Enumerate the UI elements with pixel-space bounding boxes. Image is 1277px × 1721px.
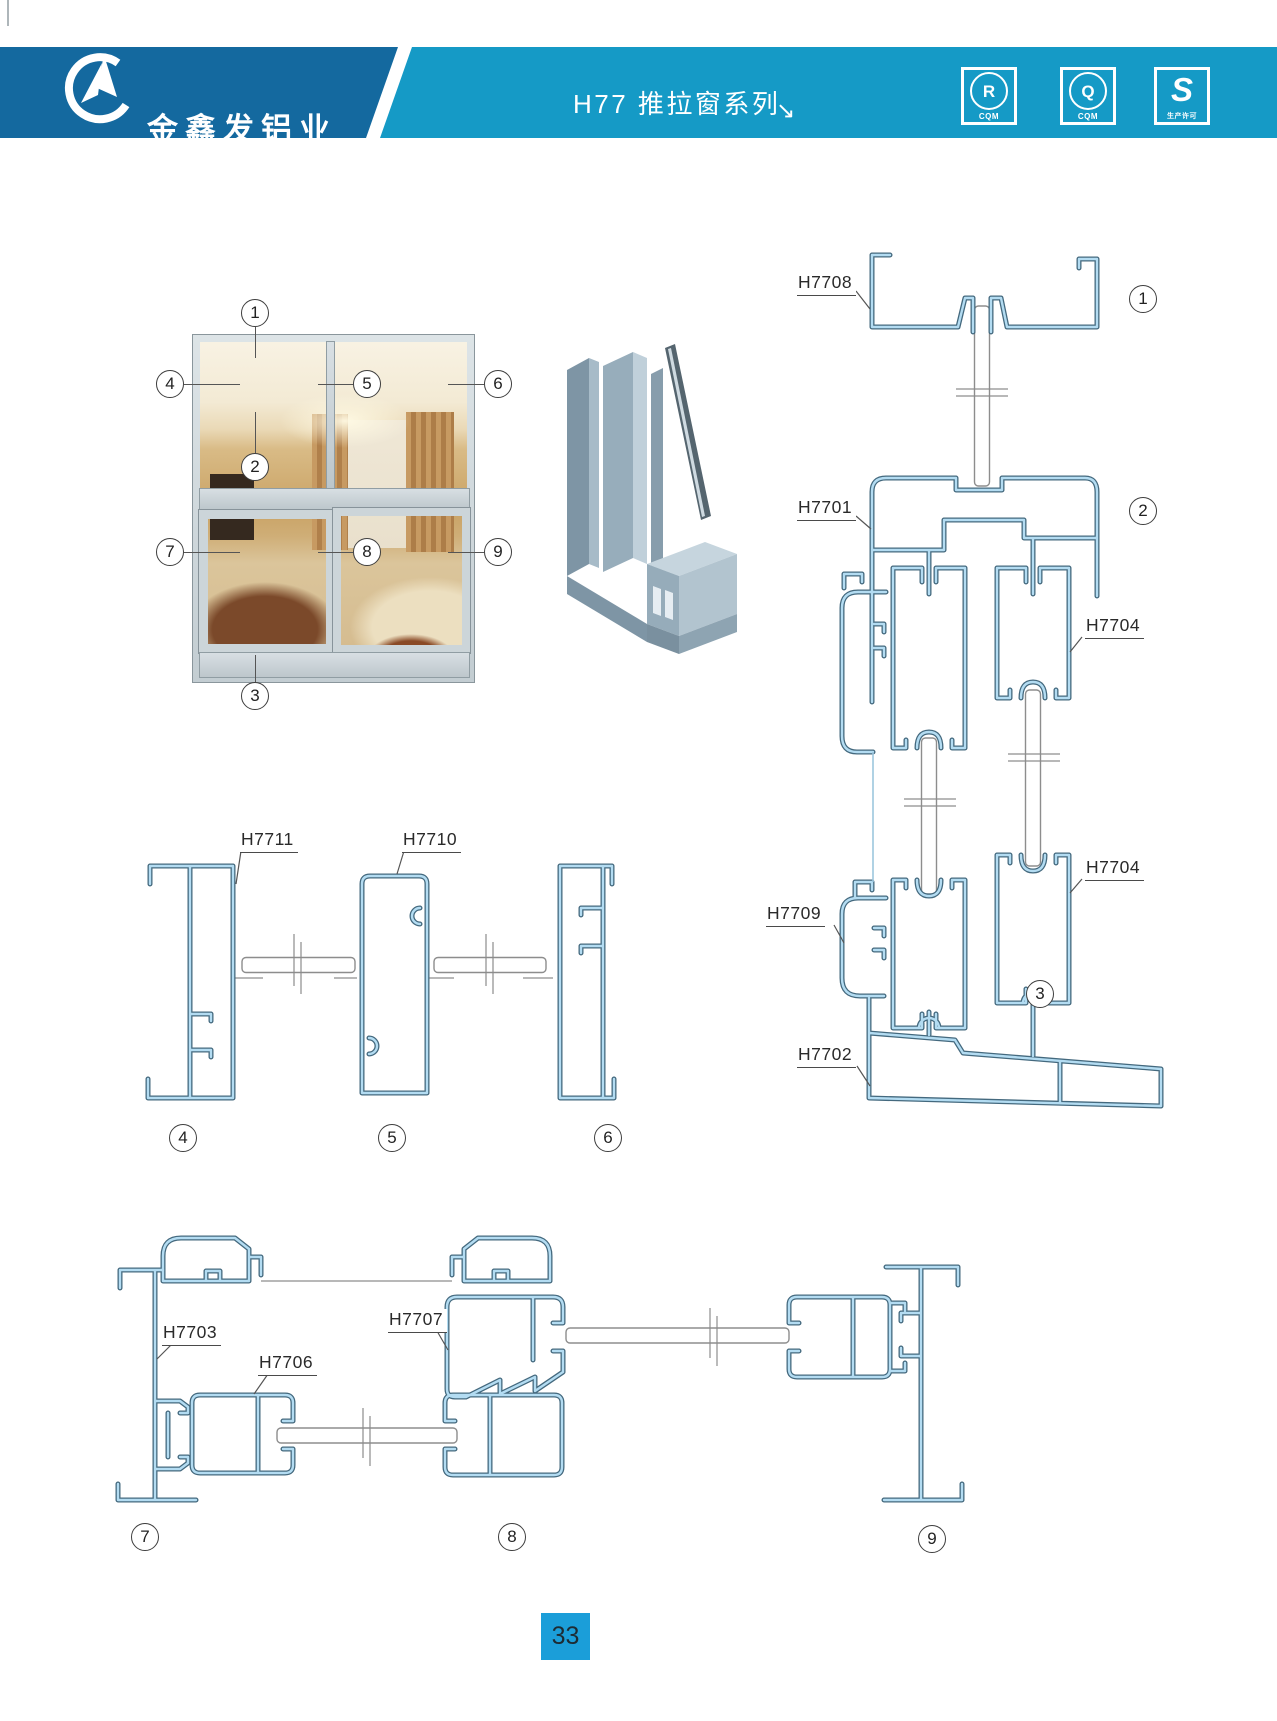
callout-section-3: 3 [1026, 980, 1054, 1008]
vertical-section-diagram [700, 225, 1180, 1055]
leader-line [448, 384, 484, 385]
part-label-h7704-upper: H7704 [1085, 615, 1144, 639]
part-label-h7708: H7708 [797, 272, 856, 296]
window-photo [192, 334, 475, 683]
callout-section-4: 4 [169, 1124, 197, 1152]
corner-mark [7, 0, 9, 26]
leader-line [255, 412, 256, 453]
cert-badge-rcqm: R CQM [961, 67, 1017, 125]
callout-section-8: 8 [498, 1523, 526, 1551]
leader-line [318, 384, 353, 385]
leader-line [255, 655, 256, 682]
window-bottom-track [199, 652, 470, 678]
part-label-h7706: H7706 [258, 1352, 317, 1376]
callout-photo-1: 1 [241, 299, 269, 327]
callout-section-6: 6 [594, 1124, 622, 1152]
part-label-h7701: H7701 [797, 497, 856, 521]
cert-letter: R [970, 72, 1008, 110]
cert-sub: CQM [1063, 112, 1113, 121]
leader-line [448, 552, 484, 553]
callout-photo-5: 5 [353, 370, 381, 398]
callout-photo-3: 3 [241, 682, 269, 710]
callout-photo-6: 6 [484, 370, 512, 398]
arrow-icon: ↘ [776, 97, 795, 124]
cert-sub: CQM [964, 112, 1014, 121]
horizontal-section-bottom-diagram [95, 1225, 975, 1515]
callout-photo-8: 8 [353, 538, 381, 566]
callout-photo-2: 2 [241, 453, 269, 481]
window-sash-left [199, 510, 335, 653]
page-number: 33 [541, 1613, 590, 1660]
cert-sub: 生产许可 [1157, 111, 1207, 121]
window-sash-right [333, 508, 470, 653]
cert-badge-qcqm: Q CQM [1060, 67, 1116, 125]
catalog-page: 金鑫发铝业 JINXINFA ALUMINUM H77 推拉窗系列 ↘ R CQ… [0, 0, 1277, 1721]
callout-section-5: 5 [378, 1124, 406, 1152]
part-label-h7707: H7707 [388, 1309, 447, 1333]
leader-line [184, 552, 240, 553]
callout-photo-4: 4 [156, 370, 184, 398]
part-label-h7703: H7703 [162, 1322, 221, 1346]
callout-section-2: 2 [1129, 497, 1157, 525]
callout-section-7: 7 [131, 1523, 159, 1551]
part-label-h7702: H7702 [797, 1044, 856, 1068]
leader-line [255, 327, 256, 358]
company-name-en: JINXINFA ALUMINUM [149, 145, 322, 161]
window-transom [199, 488, 470, 510]
cert-badge-license: S 生产许可 [1154, 67, 1210, 125]
window-mullion [326, 341, 335, 489]
callout-section-1: 1 [1129, 285, 1157, 313]
cert-letter: S [1157, 70, 1207, 110]
callout-photo-9: 9 [484, 538, 512, 566]
company-logo-icon [52, 53, 144, 131]
part-label-h7710: H7710 [402, 829, 461, 853]
leader-line [184, 384, 240, 385]
page-number-value: 33 [552, 1622, 580, 1651]
part-label-h7704-lower: H7704 [1085, 857, 1144, 881]
part-label-h7709: H7709 [766, 903, 825, 927]
horizontal-section-top-diagram [95, 740, 680, 1160]
callout-section-9: 9 [918, 1525, 946, 1553]
leader-line [318, 552, 353, 553]
cert-letter: Q [1069, 72, 1107, 110]
page-title: H77 推拉窗系列 [573, 84, 780, 121]
callout-photo-7: 7 [156, 538, 184, 566]
part-label-h7711: H7711 [240, 829, 298, 853]
company-name-cn: 金鑫发铝业 [147, 104, 337, 149]
